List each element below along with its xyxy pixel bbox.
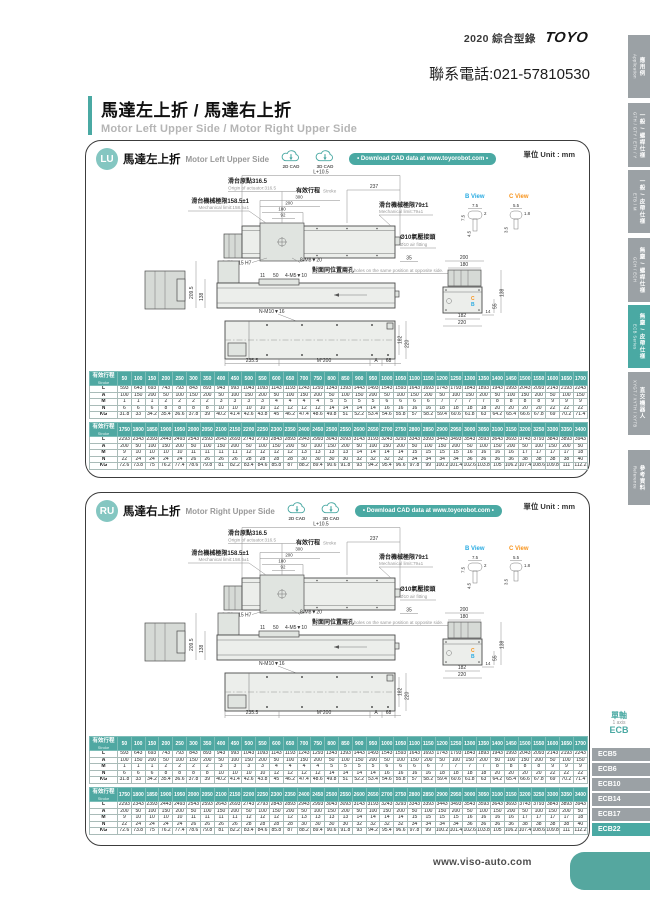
stroke-value-header: 1900 <box>159 423 173 437</box>
tab-label-en: Reference <box>633 466 638 489</box>
lu-drawing-area: L+10.5 滑台原點316.5 Origin of actuator:316.… <box>92 167 585 369</box>
table-cell: 94.2 <box>366 828 380 835</box>
dim-label: 237 <box>370 184 379 190</box>
dim-label: 182 <box>458 313 467 319</box>
table-cell: 89.4 <box>311 463 325 470</box>
tab-label-zh: 應用例 <box>638 57 646 77</box>
dim-label: 55 <box>493 303 499 309</box>
table-cell: 34.2 <box>145 412 159 419</box>
table-cell: 3293 <box>394 802 408 809</box>
stroke-value-header: 250 <box>173 372 187 386</box>
table-cell: 52.2 <box>352 777 366 784</box>
table-cell: 1443 <box>352 751 366 758</box>
table-cell: 3393 <box>421 802 435 809</box>
c-view-label: C View <box>509 546 529 552</box>
dim-label: 3.5 <box>504 578 509 585</box>
table-cell: 45 <box>269 412 283 419</box>
table-cell: 41.4 <box>228 777 242 784</box>
dim-label: 237 <box>370 536 379 542</box>
sidebar-tab-etb-m[interactable]: ETB / M 一般 / 皮帶仕樣 <box>628 170 650 233</box>
dim-label: 滑台機械極限79±1 <box>379 553 429 561</box>
stroke-value-header: 1700 <box>573 737 587 751</box>
table-cell: 45 <box>269 777 283 784</box>
stroke-value-header: 1350 <box>477 372 491 386</box>
table-cell: 3943 <box>573 437 587 444</box>
stroke-value-header: 2350 <box>283 423 297 437</box>
table-header-row: 有效行程Stroke175018001850190019502000205021… <box>90 423 588 437</box>
table-cell: 3893 <box>560 437 574 444</box>
stroke-value-header: 2050 <box>200 423 214 437</box>
table-cell: 63 <box>477 412 491 419</box>
actuator-technical-drawing: L+10.5 滑台原點316.5 Origin of actuator:316.… <box>92 167 585 369</box>
table-cell: 60.6 <box>449 412 463 419</box>
table-cell: 106.2 <box>504 828 518 835</box>
stroke-value-header: 3100 <box>490 423 504 437</box>
dim-label: 50 <box>273 273 279 279</box>
row-label: KG <box>90 463 118 470</box>
table-cell: 78.6 <box>187 828 201 835</box>
table-cell: 1743 <box>435 751 449 758</box>
tab-label-zh: 一般 / 螺桿仕樣 <box>638 112 646 159</box>
table-cell: 102.6 <box>463 828 477 835</box>
table-cell: 3693 <box>504 437 518 444</box>
dim-label: 5.5 <box>513 555 520 560</box>
table-cell: 3593 <box>477 437 491 444</box>
table-cell: 2943 <box>297 802 311 809</box>
tab-label-en: GCH / ECH <box>633 257 638 282</box>
stroke-value-header: 2250 <box>256 423 270 437</box>
b-view-label: B View <box>465 546 485 552</box>
dim-label: 138 <box>199 292 205 301</box>
cad-2d-button[interactable]: 2D CAD <box>285 501 309 521</box>
table-cell: 3443 <box>435 802 449 809</box>
stroke-value-header: 1300 <box>463 372 477 386</box>
table-cell: 96.6 <box>394 828 408 835</box>
unit-label: 單位 Unit : mm <box>523 501 575 512</box>
stroke-value-header: 2300 <box>269 788 283 802</box>
stroke-value-header: 1850 <box>145 423 159 437</box>
table-cell: 94.2 <box>366 463 380 470</box>
table-cell: 39 <box>200 777 214 784</box>
table-cell: 101.4 <box>449 828 463 835</box>
stroke-value-header: 700 <box>297 372 311 386</box>
stroke-value-header: 800 <box>325 737 339 751</box>
page-corner-accent <box>570 852 650 890</box>
stroke-value-header: 100 <box>131 737 145 751</box>
stroke-value-header: 2550 <box>339 423 353 437</box>
dim-label: Ø10氣壓接頭 <box>400 585 436 593</box>
stroke-value-header: 2750 <box>394 423 408 437</box>
panel-motor-left-upper-side: LU 馬達左上折 Motor Left Upper Side 2D CAD 3D… <box>85 140 590 478</box>
table-cell: 3143 <box>352 802 366 809</box>
stroke-value-header: 1150 <box>421 737 435 751</box>
table-cell: 103.8 <box>477 828 491 835</box>
panel-ru-title-en: Motor Right Upper Side <box>186 507 275 516</box>
stroke-value-header: 1250 <box>449 737 463 751</box>
table-cell: 3893 <box>560 802 574 809</box>
cad-2d-label: 2D CAD <box>288 516 305 521</box>
stroke-value-header: 150 <box>145 737 159 751</box>
dim-label: 235.5 <box>246 710 259 716</box>
dim-label: 235.5 <box>246 358 259 364</box>
table-cell: 42.6 <box>242 412 256 419</box>
stroke-value-header: 2600 <box>352 423 366 437</box>
bottom-view <box>225 321 395 359</box>
stroke-value-header: 2100 <box>214 788 228 802</box>
stroke-value-header: 2950 <box>449 423 463 437</box>
table-cell: 99 <box>421 828 435 835</box>
row-label: KG <box>90 412 118 419</box>
dim-label: 92 <box>281 213 286 218</box>
stroke-value-header: 1650 <box>560 737 574 751</box>
stroke-value-header: 3300 <box>546 788 560 802</box>
table-cell: 79.8 <box>200 463 214 470</box>
table-cell: 1743 <box>435 386 449 393</box>
sidebar-tab-gch-ech[interactable]: GCH / ECH 無塵 / 螺桿仕樣 <box>628 238 650 302</box>
table-cell: 111 <box>560 463 574 470</box>
stroke-value-header: 3000 <box>463 788 477 802</box>
stroke-value-header: 2150 <box>228 423 242 437</box>
table-cell: 81 <box>214 828 228 835</box>
stroke-value-header: 900 <box>352 737 366 751</box>
table-cell: 54.6 <box>380 412 394 419</box>
cad-3d-button[interactable]: 3D CAD <box>313 149 337 169</box>
cloud-download-icon <box>279 149 303 163</box>
dim-label: 14 <box>486 661 491 666</box>
table-cell: 1543 <box>380 751 394 758</box>
table-cell: 87 <box>283 828 297 835</box>
stroke-value-header: 1600 <box>546 737 560 751</box>
stroke-value-header: 1050 <box>394 737 408 751</box>
stroke-value-header: 650 <box>283 737 297 751</box>
stroke-header-zh: 有效行程 <box>90 789 117 796</box>
dim-label: 1.8 <box>524 211 531 216</box>
table-cell: 2743 <box>242 802 256 809</box>
c-view-label: C View <box>509 194 529 200</box>
table-cell: 1243 <box>297 751 311 758</box>
table-cell: 1943 <box>490 751 504 758</box>
dim-label: 55 <box>493 655 499 661</box>
table-cell: 1543 <box>380 386 394 393</box>
dim-label: 68 <box>386 358 392 364</box>
stroke-value-header: 250 <box>173 737 187 751</box>
b-view-detail: B View 7.5 2 7.5 4.5 <box>461 194 488 237</box>
table-cell: 100.2 <box>435 463 449 470</box>
table-cell: 3543 <box>463 802 477 809</box>
stroke-value-header: 2600 <box>352 788 366 802</box>
table-cell: 37.8 <box>187 777 201 784</box>
stroke-header-zh: 有效行程 <box>90 738 117 745</box>
table-cell: 77.4 <box>173 828 187 835</box>
stroke-value-header: 500 <box>242 737 256 751</box>
dim-label: 11 <box>260 625 265 631</box>
table-cell: 2043 <box>518 386 532 393</box>
table-cell: 55.8 <box>394 412 408 419</box>
table-cell: 101.4 <box>449 463 463 470</box>
dim-label: 200 <box>285 201 293 206</box>
table-cell: 1143 <box>269 751 283 758</box>
table-cell: 3543 <box>463 437 477 444</box>
dim-label: 220 <box>405 339 411 348</box>
table-cell: 2693 <box>228 802 242 809</box>
table-cell: 71.4 <box>573 777 587 784</box>
ecb-nav-item-ecb5[interactable]: ECB5 <box>592 748 650 761</box>
table-cell: 2843 <box>269 802 283 809</box>
table-cell: 47.4 <box>297 412 311 419</box>
stroke-value-header: 200 <box>159 372 173 386</box>
table-cell: 3093 <box>339 802 353 809</box>
table-cell: 106.2 <box>504 463 518 470</box>
dim-label: Mechanical limit:158.5±1 <box>198 205 249 210</box>
stroke-value-header: 100 <box>131 372 145 386</box>
table-cell: 2493 <box>173 802 187 809</box>
stroke-value-header: 2900 <box>435 788 449 802</box>
ru-drawing-area: L+10.5 滑台原點316.5 Origin of actuator:316.… <box>92 519 585 721</box>
table-cell: 108.6 <box>532 463 546 470</box>
table-cell: 76.2 <box>159 828 173 835</box>
ru-stroke-table-1: 有效行程Stroke501001502002503003504004505005… <box>89 736 588 784</box>
table-cell: 3493 <box>449 437 463 444</box>
table-cell: 1393 <box>339 751 353 758</box>
dim-label: 11 <box>260 273 265 279</box>
stroke-value-header: 900 <box>352 372 366 386</box>
ecb-nav-item-ecb22-active[interactable]: ECB22 <box>592 823 650 836</box>
dim-label: 138 <box>199 644 205 653</box>
table-cell: 1893 <box>477 386 491 393</box>
table-cell: 111 <box>560 828 574 835</box>
ecb-nav-item-ecb6[interactable]: ECB6 <box>592 763 650 776</box>
panel-ru-title-zh: 馬達右上折 <box>123 503 181 519</box>
stroke-value-header: 2450 <box>311 788 325 802</box>
table-cell: 82.2 <box>228 828 242 835</box>
stroke-value-header: 600 <box>269 372 283 386</box>
table-cell: 81 <box>214 463 228 470</box>
dim-label: 50 <box>273 625 279 631</box>
dim-label: 35 <box>406 256 412 262</box>
table-cell: 2943 <box>297 437 311 444</box>
table-cell: 2793 <box>256 802 270 809</box>
table-cell: 107.4 <box>518 828 532 835</box>
cad-3d-label: 3D CAD <box>322 516 339 521</box>
dim-label: 200 <box>285 553 293 558</box>
dim-label: 2 <box>484 211 487 216</box>
table-cell: 1993 <box>504 386 518 393</box>
table-cell: 65.4 <box>504 412 518 419</box>
stroke-value-header: 1150 <box>421 372 435 386</box>
table-row: KG72.673.87576.277.478.679.88182.283.484… <box>90 828 588 835</box>
table-cell: 58.2 <box>421 412 435 419</box>
dim-label: 209.5 <box>189 638 195 651</box>
table-cell: 61.8 <box>463 412 477 419</box>
table-cell: 35.4 <box>159 777 173 784</box>
table-cell: 79.8 <box>200 828 214 835</box>
table-cell: 1693 <box>421 386 435 393</box>
table-cell: 2343 <box>131 437 145 444</box>
dim-label: 138 <box>500 640 506 649</box>
stroke-value-header: 3400 <box>573 423 587 437</box>
tab-label-zh: 無塵 / 螺桿仕樣 <box>638 247 646 294</box>
table-cell: 70.2 <box>560 412 574 419</box>
table-cell: 1593 <box>394 386 408 393</box>
table-cell: 2793 <box>256 437 270 444</box>
ecb-nav-item-ecb10[interactable]: ECB10 <box>592 778 650 791</box>
table-cell: 43.8 <box>256 412 270 419</box>
dim-label: 180 <box>460 614 469 620</box>
dim-label: 4-M5▼10 <box>285 273 307 279</box>
table-cell: 70.2 <box>560 777 574 784</box>
plan-view <box>224 223 400 261</box>
stroke-value-header: 1100 <box>408 737 422 751</box>
table-cell: 3643 <box>490 802 504 809</box>
table-cell: 57 <box>408 777 422 784</box>
tab-label-zh: 直交機器人 <box>638 387 646 420</box>
stroke-value-header: 950 <box>366 737 380 751</box>
table-cell: 3443 <box>435 437 449 444</box>
table-cell: 2643 <box>214 437 228 444</box>
table-cell: 40.2 <box>214 777 228 784</box>
table-cell: 1493 <box>366 386 380 393</box>
ecb-group-heading: 單軸 1 axis ECB <box>590 712 648 736</box>
stroke-value-header: 2400 <box>297 423 311 437</box>
table-cell: 2443 <box>159 802 173 809</box>
row-label: KG <box>90 828 118 835</box>
cad-3d-label: 3D CAD <box>317 164 334 169</box>
stroke-value-header: 500 <box>242 372 256 386</box>
table-cell: 2993 <box>311 437 325 444</box>
dim-label: 92 <box>281 565 286 570</box>
stroke-value-header: 1900 <box>159 788 173 802</box>
stroke-header-zh: 有效行程 <box>90 424 117 431</box>
table-cell: 85.8 <box>269 463 283 470</box>
dim-label: Ø10 air fitting <box>400 242 428 247</box>
cloud-download-icon <box>319 501 343 515</box>
dim-label: 7.5 <box>472 203 479 208</box>
stroke-value-header: 1850 <box>145 788 159 802</box>
table-cell: 66.6 <box>518 412 532 419</box>
stroke-value-header: 1950 <box>173 423 187 437</box>
stroke-value-header: 2850 <box>421 423 435 437</box>
table-cell: 33 <box>131 777 145 784</box>
dim-label: M*200 <box>317 710 332 716</box>
table-cell: 40.2 <box>214 412 228 419</box>
b-marker: B <box>471 654 475 660</box>
sidebar-tab-xygt-xyth-xytb[interactable]: XYGT / XYTH / XYTB 直交機器人 <box>628 372 650 435</box>
table-cell: 77.4 <box>173 463 187 470</box>
stroke-value-header: 2500 <box>325 423 339 437</box>
tab-label-zh: 無塵 / 皮帶仕樣 <box>638 313 646 360</box>
sidebar-tab-gth-gty-eth-y[interactable]: GTH / GTY / ETH / Y 一般 / 螺桿仕樣 <box>628 103 650 167</box>
table-cell: 95.4 <box>380 828 394 835</box>
sidebar-tab-reference[interactable]: Reference 參考資料 <box>628 450 650 505</box>
table-cell: 2593 <box>200 802 214 809</box>
stroke-value-header: 1450 <box>504 737 518 751</box>
dim-label: 3.5 <box>504 226 509 233</box>
sidebar-tab-application[interactable]: Application 應用例 <box>628 35 650 98</box>
table-cell: 1893 <box>477 751 491 758</box>
table-cell: 67.8 <box>532 412 546 419</box>
table-cell: 1643 <box>408 751 422 758</box>
cad-3d-button[interactable]: 3D CAD <box>319 501 343 521</box>
table-cell: 2093 <box>532 751 546 758</box>
dim-label: Mechanical limit:79±1 <box>379 561 424 566</box>
stroke-value-header: 2800 <box>408 788 422 802</box>
stroke-value-header: 1400 <box>490 737 504 751</box>
panel-lu-title-en: Motor Left Upper Side <box>186 155 270 164</box>
stroke-value-header: 600 <box>269 737 283 751</box>
table-cell: 107.4 <box>518 463 532 470</box>
ecb-nav-item-ecb14[interactable]: ECB14 <box>592 793 650 806</box>
contact-phone: 聯系電話:021-57810530 <box>429 63 590 84</box>
cad-2d-button[interactable]: 2D CAD <box>279 149 303 169</box>
table-cell: 1843 <box>463 386 477 393</box>
dim-label: 200 <box>460 607 469 613</box>
stroke-value-header: 3250 <box>532 423 546 437</box>
row-label: KG <box>90 777 118 784</box>
dim-label: 4.5 <box>467 230 472 237</box>
table-cell: 1293 <box>311 386 325 393</box>
download-cad-button[interactable]: • Download CAD data at www.toyorobot.com… <box>355 505 502 517</box>
ecb-nav-item-ecb17[interactable]: ECB17 <box>592 808 650 821</box>
table-cell: 69 <box>546 777 560 784</box>
table-cell: 1793 <box>449 751 463 758</box>
table-cell: 72.6 <box>118 463 132 470</box>
stroke-value-header: 1000 <box>380 737 394 751</box>
table-cell: 1793 <box>449 386 463 393</box>
table-row: KG31.83334.235.436.637.83940.241.442.643… <box>90 412 588 419</box>
stroke-value-header: 1600 <box>546 372 560 386</box>
b-view-label: B View <box>465 194 485 200</box>
table-cell: 2243 <box>573 386 587 393</box>
stroke-value-header: 1500 <box>518 372 532 386</box>
page-title: 馬達左上折 / 馬達右上折 <box>101 96 357 121</box>
table-cell: 1993 <box>504 751 518 758</box>
table-cell: 41.4 <box>228 412 242 419</box>
table-cell: 48.6 <box>311 412 325 419</box>
table-header-row: 有效行程Stroke501001502002503003504004505005… <box>90 372 588 386</box>
stroke-value-header: 2650 <box>366 423 380 437</box>
table-cell: 47.4 <box>297 777 311 784</box>
table-cell: 3043 <box>325 437 339 444</box>
table-cell: 3243 <box>380 802 394 809</box>
stroke-value-header: 3000 <box>463 423 477 437</box>
stroke-value-header: 50 <box>118 737 132 751</box>
dim-label: 2 holes on the same position at opposite… <box>350 620 443 625</box>
stroke-value-header: 1300 <box>463 737 477 751</box>
table-cell: 2543 <box>187 437 201 444</box>
dim-label: Mechanical limit:79±1 <box>379 209 424 214</box>
c-view-detail: C View 5.5 1.8 3.5 <box>504 194 531 233</box>
table-cell: 3293 <box>394 437 408 444</box>
table-cell: 3643 <box>490 437 504 444</box>
stroke-value-header: 450 <box>228 737 242 751</box>
stroke-value-header: 2250 <box>256 788 270 802</box>
download-cad-button[interactable]: • Download CAD data at www.toyorobot.com… <box>349 153 496 165</box>
stroke-value-header: 1200 <box>435 737 449 751</box>
dim-label: 4.5 <box>467 582 472 589</box>
table-cell: 1343 <box>325 386 339 393</box>
table-cell: 3343 <box>408 802 422 809</box>
stroke-value-header: 2650 <box>366 788 380 802</box>
stroke-value-header: 950 <box>366 372 380 386</box>
table-cell: 108.6 <box>532 828 546 835</box>
table-cell: 3143 <box>352 437 366 444</box>
footer-website-url: www.viso-auto.com <box>433 857 532 868</box>
table-cell: 1143 <box>269 386 283 393</box>
table-cell: 90.6 <box>325 463 339 470</box>
sidebar-tab-ecb-series-active[interactable]: ECB Series 無塵 / 皮帶仕樣 <box>628 305 650 368</box>
page-subtitle: Motor Left Upper Side / Motor Right Uppe… <box>101 123 357 135</box>
lu-stroke-table-2: 有效行程Stroke175018001850190019502000205021… <box>89 422 588 470</box>
